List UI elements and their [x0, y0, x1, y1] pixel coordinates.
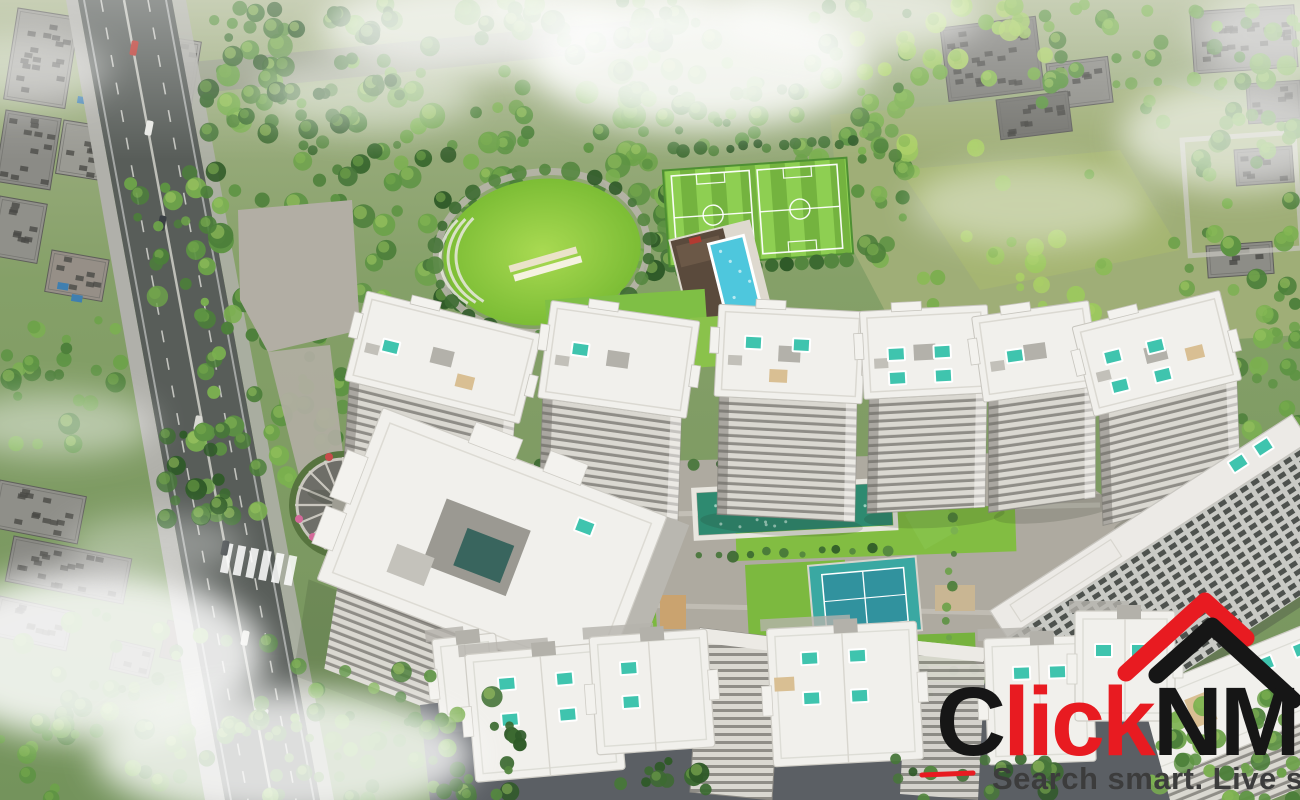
rooftop-skylight [851, 689, 869, 703]
flower-bed [295, 515, 303, 523]
rooftop-skylight [889, 371, 907, 385]
brand-word-part2: lick [1003, 667, 1157, 776]
rooftop-skylight [1103, 348, 1123, 365]
rooftop-skylight [803, 691, 821, 705]
rooftop-skylight [849, 649, 867, 663]
cloud [910, 163, 1150, 247]
cloud [65, 515, 245, 575]
entrance-plaza [238, 200, 360, 352]
aerial-township-render: ClickNMo Search smart. Live sm [0, 0, 1300, 800]
rooftop-skylight [933, 345, 951, 359]
rooftop-skylight [556, 671, 574, 685]
brand-word-part3: NMo [1153, 667, 1300, 776]
rooftop-skylight [887, 347, 905, 361]
residential-tower-roof [758, 611, 932, 767]
residential-tower [700, 297, 875, 540]
brand-wordmark: ClickNMo [936, 667, 1300, 776]
rooftop-skylight [1095, 644, 1112, 657]
brand-tagline: Search smart. Live sm [992, 761, 1300, 796]
rooftop-skylight [1153, 367, 1173, 384]
rooftop-skylight [935, 369, 953, 383]
brand-word-part1: C [936, 667, 1004, 776]
residential-tower-roof [580, 618, 723, 755]
rooftop-skylight [498, 676, 516, 690]
flower-bed [325, 453, 333, 461]
rooftop-skylight [1006, 348, 1025, 363]
pergola [660, 595, 686, 629]
rooftop-skylight [793, 338, 811, 352]
rooftop-skylight [381, 338, 401, 355]
top-haze [0, 0, 1300, 160]
rooftop-skylight [559, 707, 577, 721]
rooftop-skylight [622, 695, 640, 709]
aerial-render-canvas: ClickNMo Search smart. Live sm [0, 0, 1300, 800]
rooftop-skylight [801, 651, 819, 665]
rooftop-skylight [1146, 338, 1166, 355]
rooftop-skylight [620, 661, 638, 675]
rooftop-skylight [571, 342, 590, 357]
rooftop-skylight [1110, 377, 1130, 394]
rooftop-skylight [745, 336, 763, 350]
